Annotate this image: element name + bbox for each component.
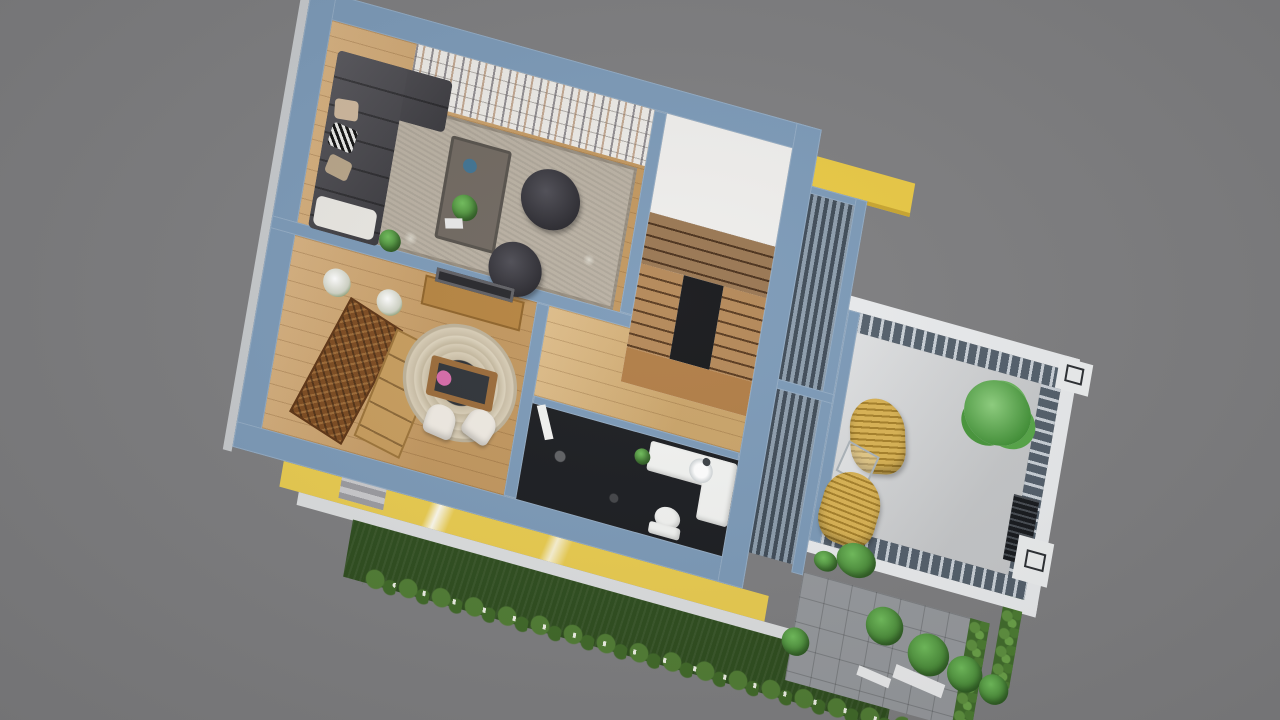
render-scene [0,0,1280,720]
magazine [445,218,464,228]
canvas: { "scene": { "type": "architectural-3d-f… [0,0,1280,720]
sofa-pillow-tan [334,98,359,122]
